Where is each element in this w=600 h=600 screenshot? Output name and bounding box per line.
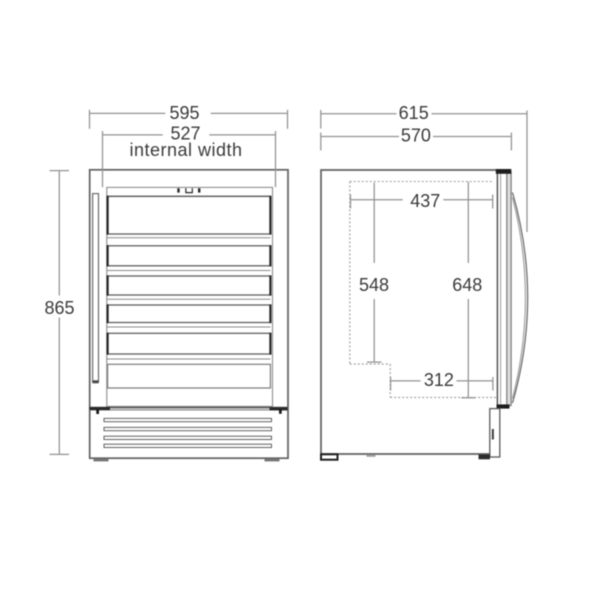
svg-text:internal width: internal width (129, 140, 242, 160)
svg-text:312: 312 (424, 370, 454, 390)
svg-text:615: 615 (399, 103, 429, 123)
svg-text:648: 648 (452, 275, 482, 295)
svg-text:437: 437 (410, 191, 440, 211)
svg-text:548: 548 (359, 275, 389, 295)
svg-text:595: 595 (169, 103, 199, 123)
svg-text:865: 865 (44, 298, 74, 318)
svg-text:570: 570 (401, 125, 431, 145)
